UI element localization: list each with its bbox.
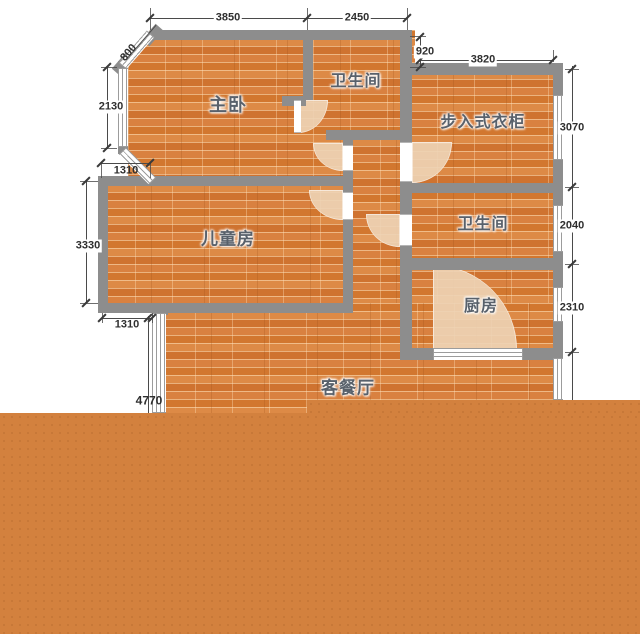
door-opening-bath-mid	[400, 214, 412, 246]
dim-label-920: 920	[414, 46, 436, 59]
dim-label-3070: 3070	[558, 122, 586, 135]
wall-right-d	[553, 322, 563, 358]
wall-kids-bottom	[98, 303, 353, 313]
door-leaf-bath-top	[294, 100, 301, 133]
dim-label-1310-bottom: 1310	[113, 319, 141, 332]
door-opening-closet	[400, 142, 412, 182]
dim-label-3330: 3330	[74, 240, 102, 253]
dim-label-4770: 4770	[134, 395, 165, 408]
door-opening-kids	[343, 192, 353, 220]
wall-column-a	[400, 30, 412, 142]
wall-closet-bottom	[400, 183, 563, 193]
orange-overlay-bottom	[0, 413, 640, 634]
door-opening-master	[343, 145, 353, 171]
wall-master-right	[303, 40, 313, 100]
wall-right-a	[553, 63, 563, 95]
wall-hall-left-b	[343, 169, 353, 192]
window-living-right	[553, 358, 563, 400]
dim-label-1310-top: 1310	[112, 165, 140, 178]
wall-hall-left-a	[343, 137, 353, 145]
wall-right-b	[553, 160, 563, 205]
kitchen-sliding-door	[433, 348, 523, 360]
room-label-living-dining: 客餐厅	[321, 374, 375, 399]
dim-label-2130: 2130	[97, 101, 125, 114]
dim-label-2040: 2040	[558, 220, 586, 233]
wall-right-c	[553, 252, 563, 287]
wall-kitchen-bottom-left	[400, 348, 433, 360]
dim-label-3850: 3850	[214, 12, 242, 25]
wall-top-exterior	[150, 30, 410, 40]
room-label-closet: 步入式衣柜	[440, 108, 525, 132]
room-label-bath-top: 卫生间	[330, 67, 381, 91]
floorplan-canvas: 3850 2450 920 3820 3070 2040 2310 800 21…	[0, 0, 640, 634]
dim-label-2450: 2450	[343, 12, 371, 25]
wall-bath-mid-bottom	[400, 258, 563, 270]
room-label-kids-room: 儿童房	[201, 225, 255, 250]
dim-ext	[101, 163, 102, 178]
dim-label-2310: 2310	[558, 302, 586, 315]
wall-hall-left-c	[343, 218, 353, 313]
room-label-bath-mid: 卫生间	[457, 210, 508, 234]
dim-ext	[150, 163, 151, 178]
wall-kids-top	[98, 176, 353, 186]
dim-label-3820: 3820	[469, 54, 497, 67]
room-label-kitchen: 厨房	[464, 292, 498, 316]
room-label-master-bedroom: 主卧	[209, 91, 247, 117]
